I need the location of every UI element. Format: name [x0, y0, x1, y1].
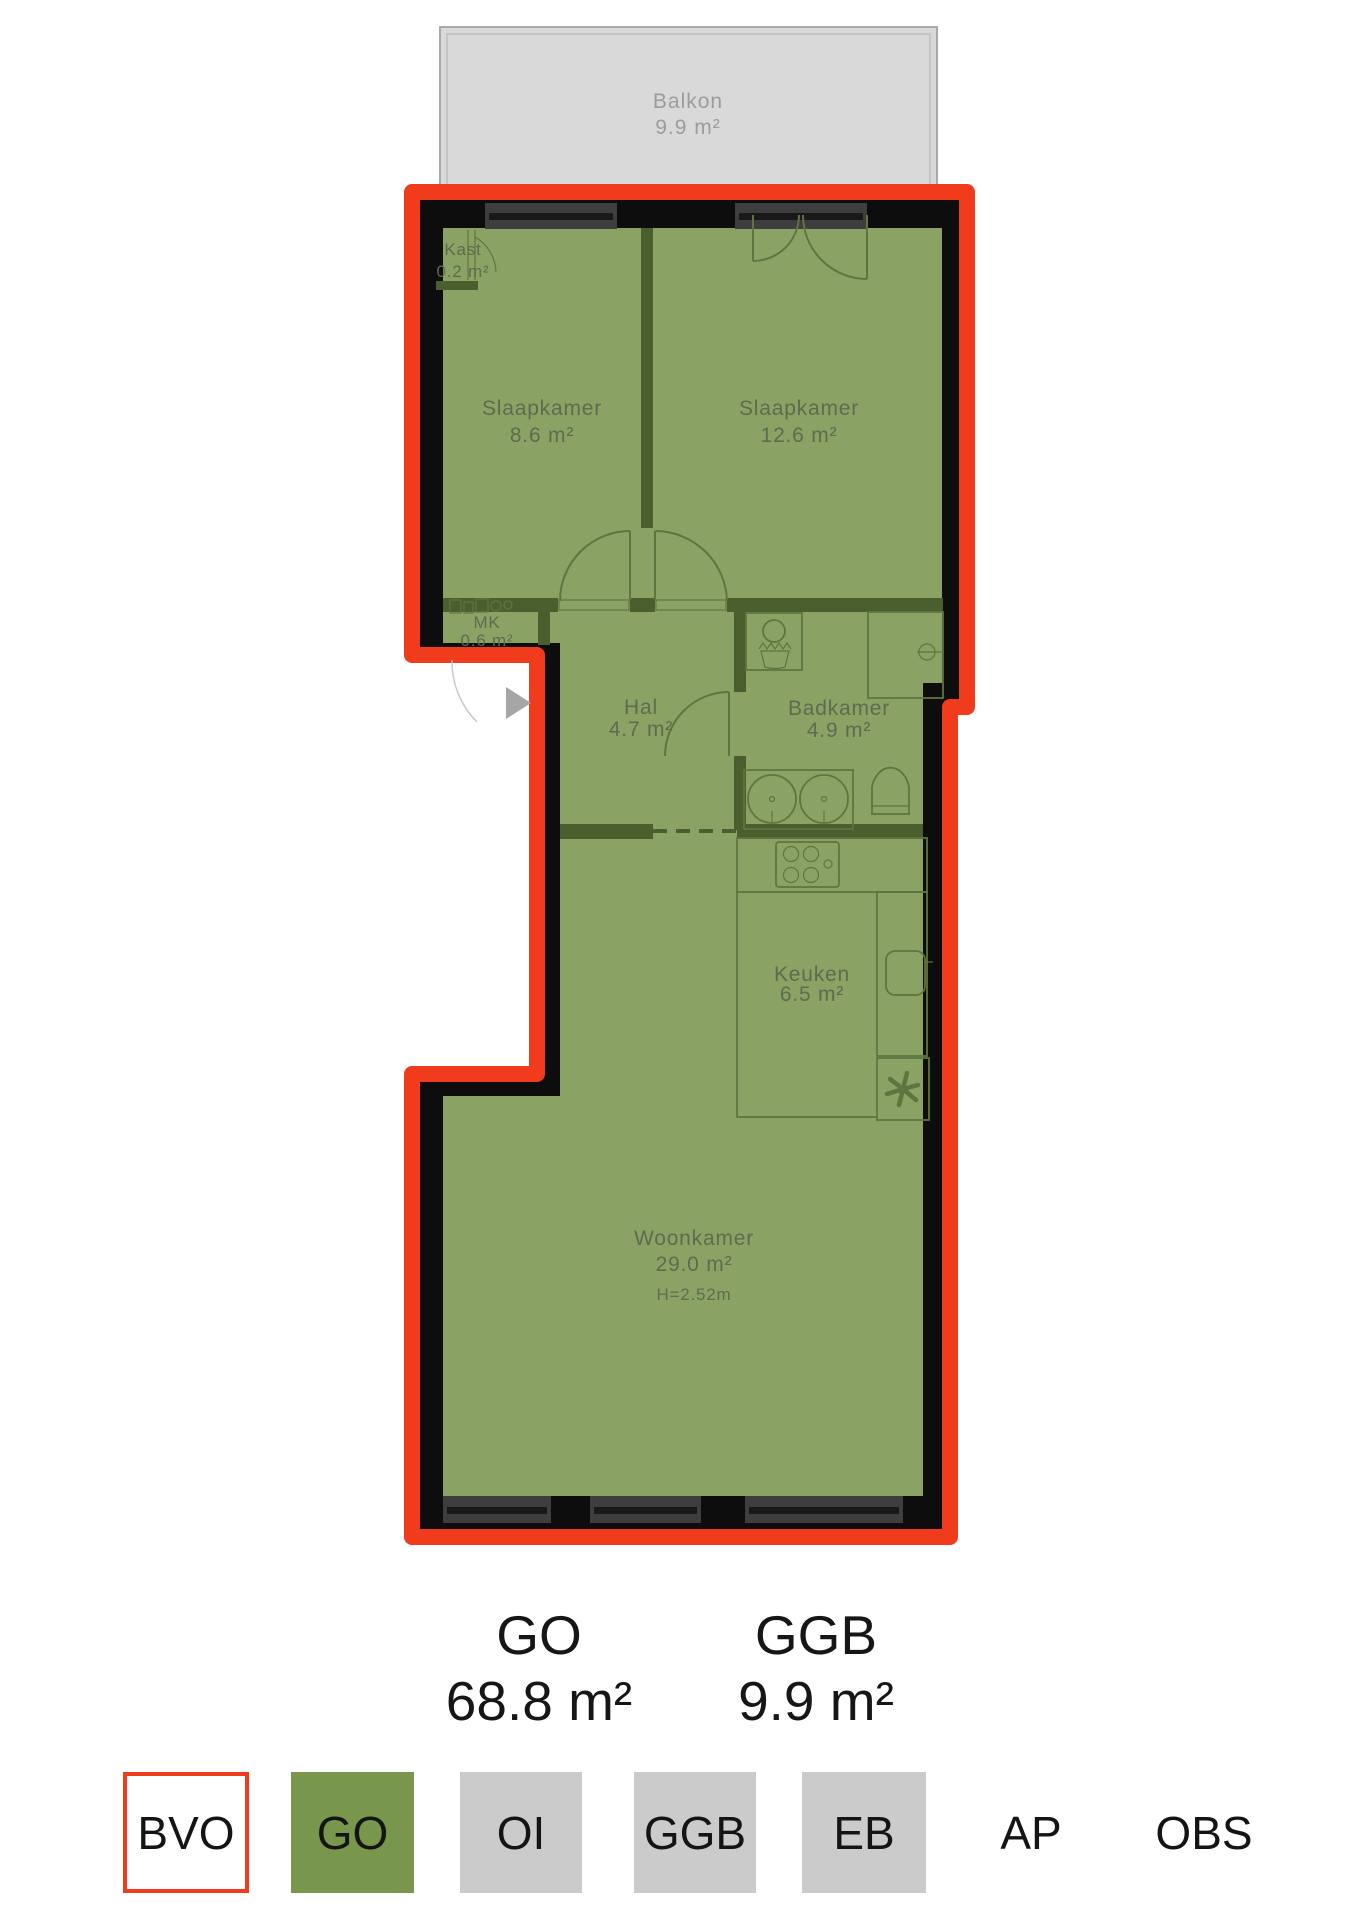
legend-item-bvo: BVO — [123, 1772, 249, 1893]
entrance-door-arc — [452, 660, 477, 722]
wall-bathroom-south — [737, 824, 923, 839]
legend-item-go: GO — [291, 1772, 414, 1893]
room-label-kast: Kast — [444, 240, 481, 259]
balcony: Balkon 9.9 m² — [440, 27, 937, 199]
legend-label-bvo: BVO — [137, 1806, 234, 1860]
window-bottom-1-glass — [447, 1507, 547, 1514]
legend-label-eb: EB — [833, 1806, 894, 1860]
window-top-1-glass — [489, 213, 613, 220]
legend-item-ggb: GGB — [634, 1772, 756, 1893]
legend-item-obs: OBS — [1144, 1772, 1264, 1893]
legend-item-ap: AP — [971, 1772, 1091, 1893]
room-label-badkamer: Badkamer — [788, 697, 890, 720]
room-area-hal: 4.7 m² — [609, 718, 673, 741]
room-area-woonkamer: 29.0 m² — [656, 1253, 733, 1276]
room-area-mk: 0.6 m² — [461, 631, 514, 650]
summary-go-value: 68.8 m² — [389, 1668, 689, 1734]
entrance-arrow-icon — [506, 687, 531, 719]
legend-label-oi: OI — [497, 1806, 546, 1860]
room-label-slaapkamer-2: Slaapkamer — [739, 397, 859, 420]
summary-ggb-value: 9.9 m² — [666, 1668, 966, 1734]
room-area-badkamer: 4.9 m² — [807, 719, 871, 742]
room-label-slaapkamer-1: Slaapkamer — [482, 397, 602, 420]
balcony-name: Balkon — [653, 90, 723, 113]
window-bottom-2-glass — [594, 1507, 697, 1514]
legend: BVO GO OI GGB EB AP OBS — [0, 1772, 1358, 1893]
floorplan-page: Balkon 9.9 m² — [0, 0, 1358, 1920]
summary-go: GO 68.8 m² — [389, 1602, 689, 1734]
window-bottom-3-glass — [749, 1507, 899, 1514]
room-label-hal: Hal — [624, 696, 658, 719]
room-area-kast: 0.2 m² — [437, 262, 490, 281]
wall-mk-right — [538, 598, 550, 645]
room-height-woonkamer: H=2.52m — [656, 1285, 731, 1304]
summary-go-label: GO — [389, 1602, 689, 1668]
legend-label-ap: AP — [1000, 1806, 1061, 1860]
wall-hall-north-right — [727, 598, 943, 612]
room-area-keuken: 6.5 m² — [780, 983, 844, 1006]
wall-bathroom-left-upper — [734, 612, 746, 692]
window-top-2-glass — [739, 213, 863, 220]
summary-ggb-label: GGB — [666, 1602, 966, 1668]
legend-item-eb: EB — [802, 1772, 926, 1893]
wall-hall-south — [560, 824, 653, 839]
room-label-woonkamer: Woonkamer — [634, 1227, 754, 1250]
room-area-slaapkamer-1: 8.6 m² — [510, 424, 574, 447]
room-area-slaapkamer-2: 12.6 m² — [761, 424, 838, 447]
legend-label-obs: OBS — [1155, 1806, 1252, 1860]
balcony-floor — [440, 27, 937, 199]
legend-label-ggb: GGB — [644, 1806, 746, 1860]
wall-hall-north-mid — [630, 598, 655, 612]
room-label-mk: MK — [473, 613, 500, 632]
balcony-area: 9.9 m² — [655, 116, 721, 139]
entrance — [452, 660, 531, 722]
legend-item-oi: OI — [460, 1772, 582, 1893]
wall-closet-bottom — [436, 281, 478, 290]
legend-label-go: GO — [317, 1806, 389, 1860]
summary-ggb: GGB 9.9 m² — [666, 1602, 966, 1734]
wall-bedroom-divider — [641, 228, 653, 528]
